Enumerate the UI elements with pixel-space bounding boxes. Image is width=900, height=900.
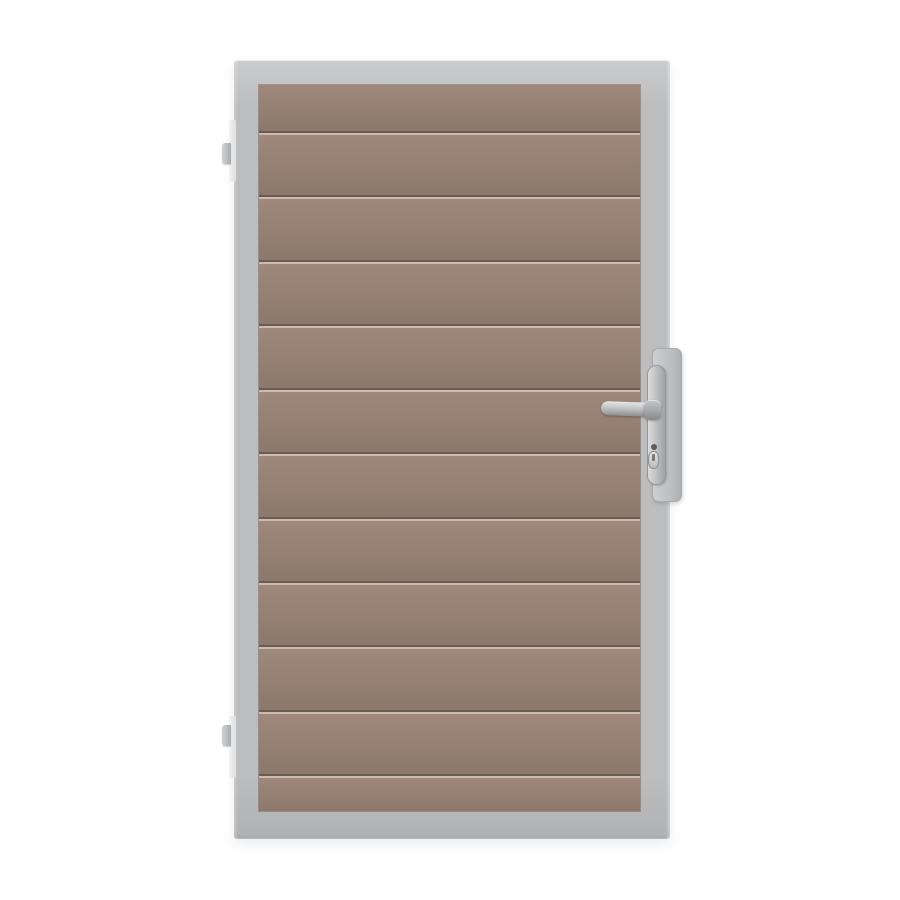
- gate-slat: [259, 581, 640, 645]
- gate-slat: [259, 85, 640, 131]
- lever-handle-neck: [644, 400, 661, 420]
- gate-slat: [259, 260, 640, 324]
- gate-slat: [259, 774, 640, 811]
- gate-panel: [258, 84, 641, 812]
- gate-slat: [259, 710, 640, 774]
- hinge-pin-icon: [222, 143, 231, 164]
- gate-slat: [259, 388, 640, 452]
- gate-slat: [259, 195, 640, 259]
- hinge-pin-icon: [222, 725, 231, 746]
- gate-slat: [259, 324, 640, 388]
- gate-slat: [259, 452, 640, 516]
- keyhole-icon: [651, 444, 657, 450]
- gate: [234, 60, 670, 839]
- lock-cylinder-icon: [648, 451, 659, 469]
- gate-slat: [259, 517, 640, 581]
- product-photo-garden-gate: [0, 0, 900, 900]
- gate-slat: [259, 131, 640, 195]
- gate-slat: [259, 645, 640, 709]
